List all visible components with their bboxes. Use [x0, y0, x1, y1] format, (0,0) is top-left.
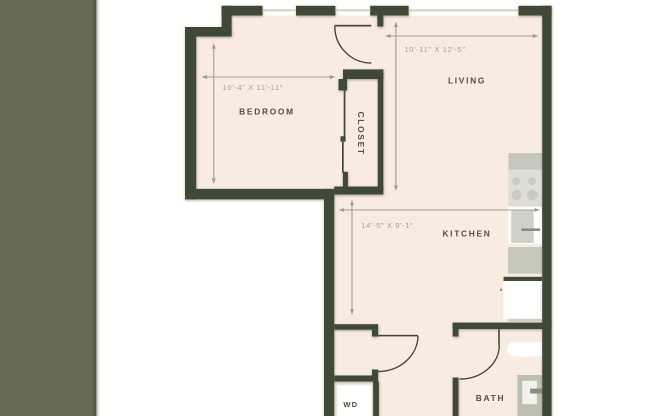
svg-text:10'-11" X 12'-5": 10'-11" X 12'-5": [404, 45, 465, 54]
svg-text:LIVING: LIVING: [448, 75, 486, 85]
svg-text:14'-5" X 9'-1": 14'-5" X 9'-1": [361, 221, 413, 230]
svg-text:CLOSET: CLOSET: [356, 112, 366, 156]
svg-text:10'-4" X 11'-11": 10'-4" X 11'-11": [223, 83, 284, 92]
svg-text:WD: WD: [343, 400, 358, 409]
svg-text:KITCHEN: KITCHEN: [442, 229, 491, 239]
svg-text:BATH: BATH: [476, 393, 505, 403]
svg-text:BEDROOM: BEDROOM: [239, 107, 295, 117]
